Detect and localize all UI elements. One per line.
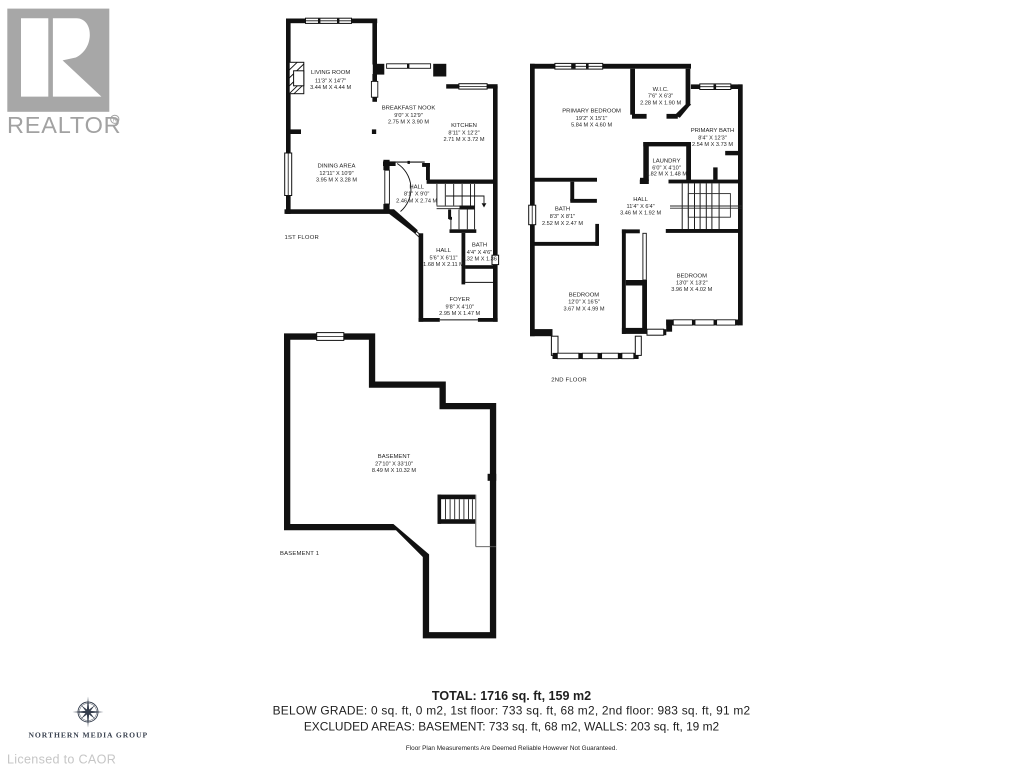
svg-text:19'2" X 15'1": 19'2" X 15'1": [576, 116, 608, 122]
svg-text:9'8" X 4'10": 9'8" X 4'10": [445, 305, 474, 311]
svg-text:HALL: HALL: [409, 184, 424, 190]
svg-text:BASEMENT: BASEMENT: [378, 454, 411, 460]
svg-text:HALL: HALL: [633, 197, 648, 203]
svg-text:BELOW GRADE: 0 sq. ft, 0 m2, 1: BELOW GRADE: 0 sq. ft, 0 m2, 1st floor: …: [273, 703, 751, 717]
svg-text:1.82 M X 1.48 M: 1.82 M X 1.48 M: [646, 172, 687, 178]
svg-text:FOYER: FOYER: [450, 297, 470, 303]
svg-text:2ND FLOOR: 2ND FLOOR: [551, 378, 587, 384]
svg-text:4'4" X 4'6": 4'4" X 4'6": [467, 250, 492, 256]
svg-text:1.68 M X 2.11 M: 1.68 M X 2.11 M: [423, 262, 464, 268]
svg-text:8.49 M X 10.32 M: 8.49 M X 10.32 M: [372, 468, 416, 474]
svg-text:2.28 M X 1.90 M: 2.28 M X 1.90 M: [640, 100, 681, 106]
svg-text:1ST FLOOR: 1ST FLOOR: [285, 235, 319, 241]
svg-text:PRIMARY BATH: PRIMARY BATH: [691, 128, 735, 134]
svg-text:2.95 M X 1.47 M: 2.95 M X 1.47 M: [439, 311, 480, 317]
svg-text:2.54 M X 3.73 M: 2.54 M X 3.73 M: [692, 142, 733, 148]
svg-text:LIVING ROOM: LIVING ROOM: [311, 70, 350, 76]
svg-text:REALTOR: REALTOR: [7, 112, 121, 138]
svg-text:3.95 M X 3.28 M: 3.95 M X 3.28 M: [316, 177, 357, 183]
svg-text:1.32 M X 1.36: 1.32 M X 1.36: [462, 256, 497, 262]
svg-text:W.I.C.: W.I.C.: [653, 87, 669, 93]
svg-text:BEDROOM: BEDROOM: [569, 293, 600, 299]
svg-text:2.52 M X 2.47 M: 2.52 M X 2.47 M: [542, 221, 583, 227]
svg-text:BATH: BATH: [555, 207, 570, 213]
svg-text:2.46 M X 2.74 M: 2.46 M X 2.74 M: [396, 198, 437, 204]
svg-text:TOTAL: 1716 sq. ft, 159 m2: TOTAL: 1716 sq. ft, 159 m2: [432, 689, 591, 703]
svg-text:5.84 M X 4.60 M: 5.84 M X 4.60 M: [571, 123, 612, 129]
svg-text:Licensed to CAOR: Licensed to CAOR: [7, 753, 116, 767]
svg-text:DINING AREA: DINING AREA: [318, 164, 356, 170]
svg-text:2.75 M X 3.90 M: 2.75 M X 3.90 M: [388, 119, 429, 125]
svg-text:11'3" X 14'7": 11'3" X 14'7": [315, 78, 346, 84]
svg-text:BASEMENT 1: BASEMENT 1: [280, 551, 319, 557]
svg-text:3.46 M X 1.92 M: 3.46 M X 1.92 M: [620, 211, 661, 217]
svg-text:8'4" X 12'3": 8'4" X 12'3": [698, 135, 727, 141]
svg-text:8'1" X 9'0": 8'1" X 9'0": [404, 192, 429, 198]
svg-text:Floor Plan Measurements Are De: Floor Plan Measurements Are Deemed Relia…: [406, 745, 618, 752]
svg-text:BEDROOM: BEDROOM: [677, 273, 708, 279]
svg-text:9'0" X 12'9": 9'0" X 12'9": [394, 113, 423, 119]
svg-text:NORTHERN MEDIA GROUP: NORTHERN MEDIA GROUP: [29, 731, 149, 740]
svg-text:3.67 M X 4.99 M: 3.67 M X 4.99 M: [563, 306, 604, 312]
svg-text:8'11" X 12'2": 8'11" X 12'2": [448, 131, 479, 137]
svg-text:6'0" X 4'10": 6'0" X 4'10": [652, 165, 681, 171]
svg-text:3.96 M X 4.02 M: 3.96 M X 4.02 M: [671, 287, 712, 293]
svg-text:7'6" X 6'3": 7'6" X 6'3": [648, 94, 673, 100]
svg-text:PRIMARY BEDROOM: PRIMARY BEDROOM: [562, 108, 621, 114]
svg-text:BATH: BATH: [472, 243, 487, 249]
svg-text:27'10" X 33'10": 27'10" X 33'10": [375, 461, 413, 467]
svg-text:13'0" X 13'2": 13'0" X 13'2": [676, 281, 708, 287]
svg-text:8'3" X 8'1": 8'3" X 8'1": [550, 214, 575, 220]
svg-text:5'6" X 6'11": 5'6" X 6'11": [429, 255, 457, 261]
svg-text:R: R: [113, 118, 117, 124]
svg-text:BREAKFAST NOOK: BREAKFAST NOOK: [382, 106, 436, 112]
svg-text:KITCHEN: KITCHEN: [451, 123, 477, 129]
svg-text:2.71 M X 3.72 M: 2.71 M X 3.72 M: [443, 137, 484, 143]
svg-text:HALL: HALL: [436, 248, 451, 254]
svg-text:LAUNDRY: LAUNDRY: [652, 158, 680, 164]
svg-text:11'4" X 6'4": 11'4" X 6'4": [627, 204, 655, 210]
svg-text:3.44 M X 4.44 M: 3.44 M X 4.44 M: [310, 85, 351, 91]
svg-text:12'0" X 16'5": 12'0" X 16'5": [568, 300, 600, 306]
svg-text:EXCLUDED AREAS: BASEMENT: 733: EXCLUDED AREAS: BASEMENT: 733 sq. ft, 68…: [304, 720, 720, 734]
svg-text:12'11" X 10'9": 12'11" X 10'9": [319, 171, 353, 177]
